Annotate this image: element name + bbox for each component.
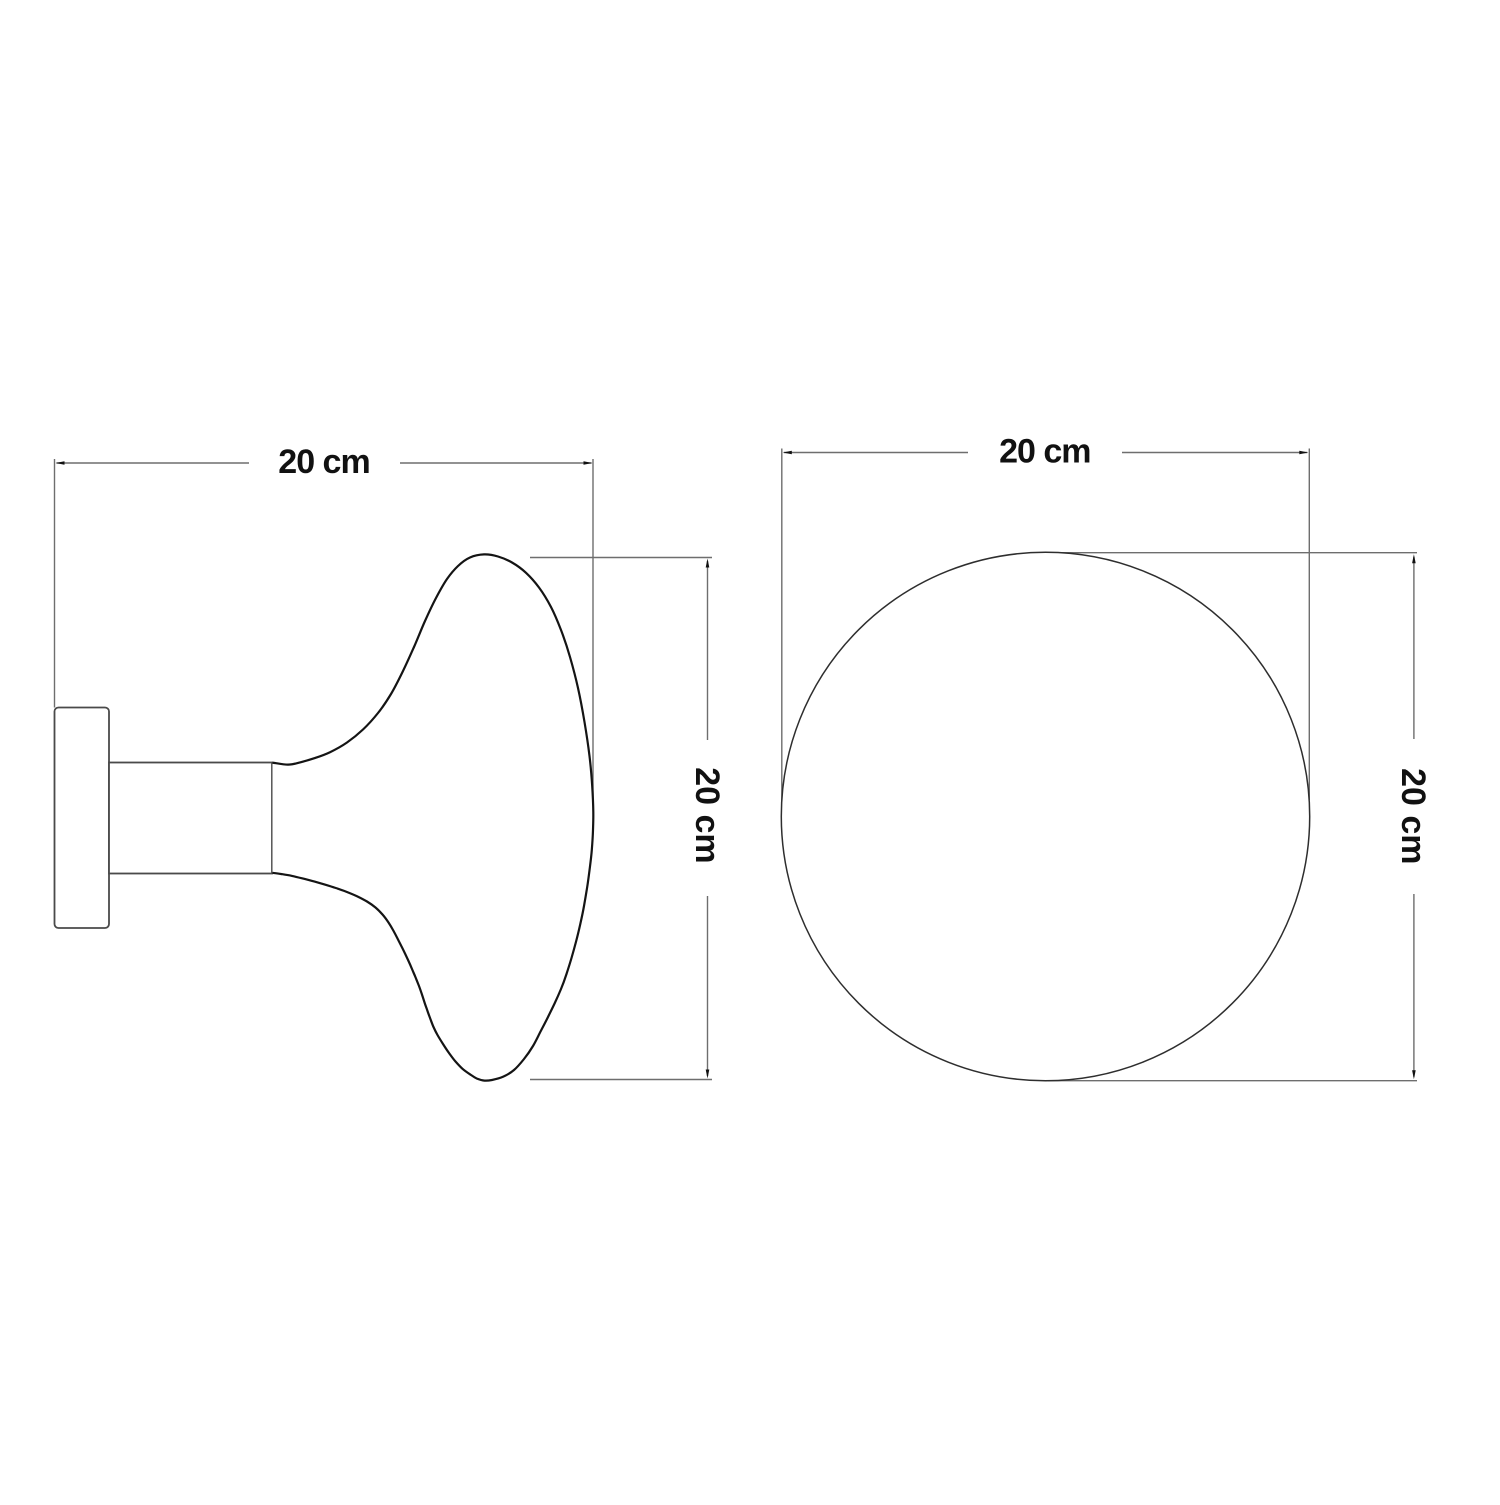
svg-text:20 cm: 20 cm xyxy=(688,767,726,863)
svg-text:20 cm: 20 cm xyxy=(278,443,369,481)
svg-text:20 cm: 20 cm xyxy=(1394,768,1432,864)
svg-text:20 cm: 20 cm xyxy=(999,432,1090,470)
